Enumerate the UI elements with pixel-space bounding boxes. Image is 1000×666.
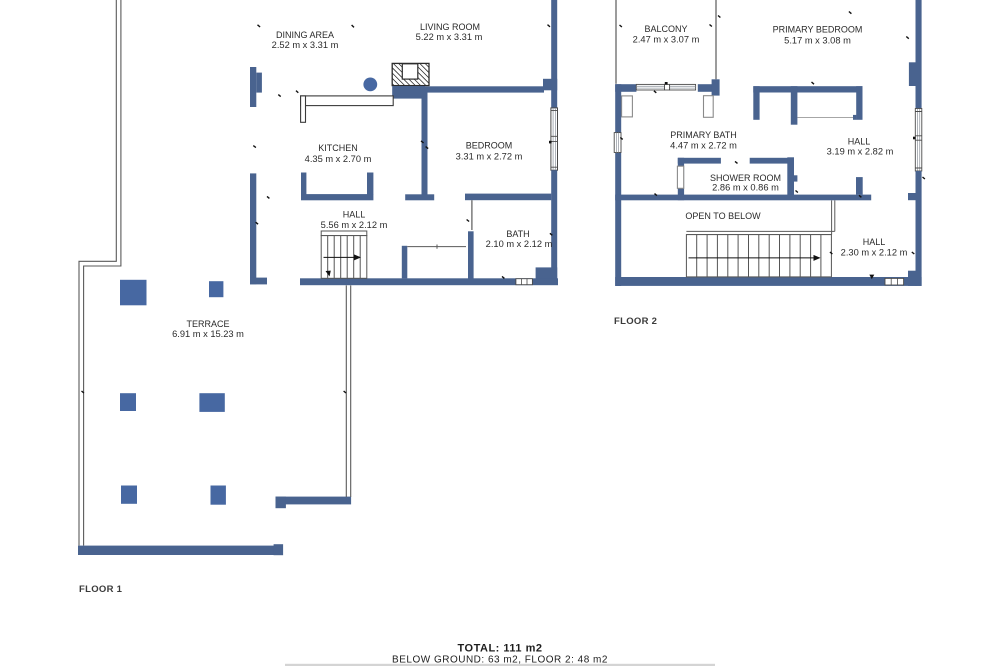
svg-text:OPEN TO BELOW: OPEN TO BELOW: [685, 211, 761, 221]
svg-text:FLOOR 2: FLOOR 2: [614, 316, 657, 327]
svg-text:4.47 m x 2.72 m: 4.47 m x 2.72 m: [670, 140, 737, 150]
svg-text:BELOW GROUND: 63 m2, FLOOR 2:: BELOW GROUND: 63 m2, FLOOR 2: 48 m2: [392, 654, 608, 665]
svg-text:KITCHEN: KITCHEN: [318, 143, 358, 153]
svg-text:PRIMARY BEDROOM: PRIMARY BEDROOM: [773, 25, 863, 35]
svg-text:LIVING ROOM: LIVING ROOM: [420, 22, 480, 32]
svg-text:6.91 m x 15.23 m: 6.91 m x 15.23 m: [172, 329, 244, 339]
svg-text:5.22 m x 3.31 m: 5.22 m x 3.31 m: [416, 32, 483, 42]
svg-text:4.35 m x 2.70 m: 4.35 m x 2.70 m: [305, 154, 372, 164]
svg-text:PRIMARY BATH: PRIMARY BATH: [670, 130, 737, 140]
svg-text:2.47 m x 3.07 m: 2.47 m x 3.07 m: [633, 35, 700, 45]
svg-text:TERRACE: TERRACE: [186, 319, 229, 329]
svg-text:BATH: BATH: [506, 229, 529, 239]
svg-text:5.56 m x 2.12 m: 5.56 m x 2.12 m: [321, 220, 388, 230]
svg-text:3.31 m x 2.72 m: 3.31 m x 2.72 m: [456, 152, 523, 162]
svg-text:DINING AREA: DINING AREA: [276, 30, 334, 40]
svg-text:FLOOR 1: FLOOR 1: [79, 584, 123, 595]
svg-text:2.30 m x 2.12 m: 2.30 m x 2.12 m: [841, 248, 908, 258]
svg-text:2.52 m x 3.31 m: 2.52 m x 3.31 m: [272, 40, 339, 50]
svg-text:3.19 m x 2.82 m: 3.19 m x 2.82 m: [827, 147, 894, 157]
svg-text:BEDROOM: BEDROOM: [466, 141, 513, 151]
svg-text:2.86 m x 0.86 m: 2.86 m x 0.86 m: [712, 182, 779, 192]
svg-text:HALL: HALL: [343, 210, 366, 220]
svg-text:HALL: HALL: [863, 237, 886, 247]
svg-text:BALCONY: BALCONY: [644, 24, 687, 34]
svg-text:HALL: HALL: [848, 137, 871, 147]
svg-text:5.17 m x 3.08 m: 5.17 m x 3.08 m: [784, 35, 851, 45]
svg-text:2.10 m x 2.12 m: 2.10 m x 2.12 m: [486, 239, 553, 249]
svg-text:TOTAL: 111 m2: TOTAL: 111 m2: [458, 642, 543, 654]
